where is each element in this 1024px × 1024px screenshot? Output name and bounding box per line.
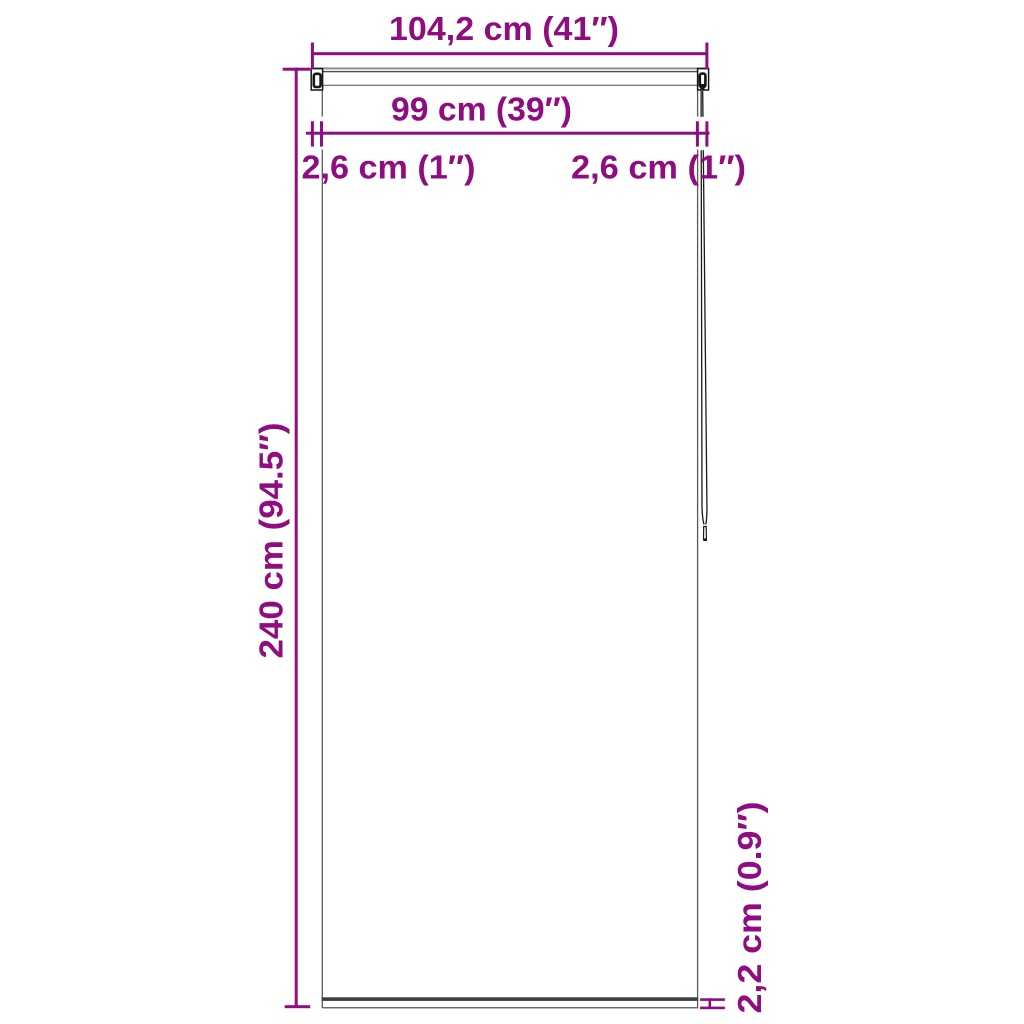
- svg-text:99 cm (39″): 99 cm (39″): [391, 90, 572, 127]
- svg-text:2,6 cm (1″): 2,6 cm (1″): [302, 149, 476, 186]
- svg-text:2,6 cm (1″): 2,6 cm (1″): [571, 149, 746, 186]
- svg-text:240 cm (94.5″): 240 cm (94.5″): [252, 423, 289, 659]
- svg-text:104,2 cm (41″): 104,2 cm (41″): [389, 10, 619, 47]
- svg-text:2,2 cm (0.9″): 2,2 cm (0.9″): [731, 802, 768, 1014]
